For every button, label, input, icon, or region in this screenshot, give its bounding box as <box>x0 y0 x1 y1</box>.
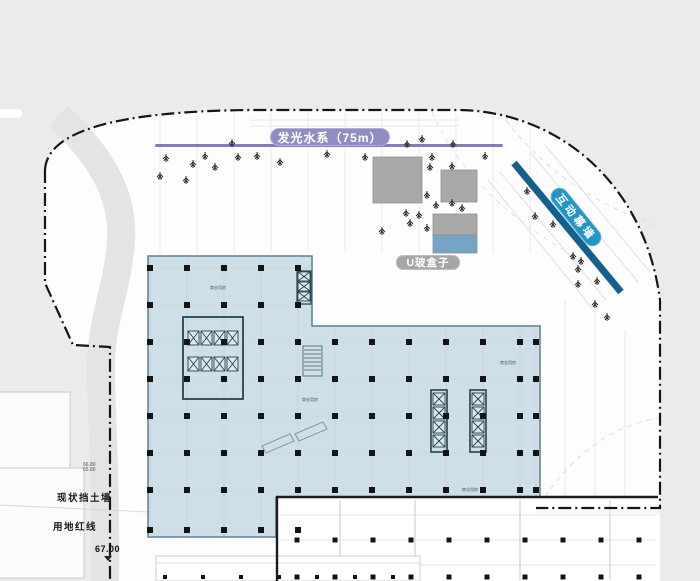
column <box>637 575 642 580</box>
column <box>369 413 375 419</box>
column <box>295 575 300 580</box>
column <box>163 575 167 579</box>
column <box>447 575 452 580</box>
column <box>184 339 190 345</box>
column <box>332 339 338 345</box>
column <box>443 450 449 456</box>
column <box>184 376 190 382</box>
column <box>599 575 604 580</box>
column <box>561 538 566 543</box>
column <box>523 575 528 580</box>
room-label: 商业用房 <box>210 285 226 291</box>
column <box>258 487 264 493</box>
column <box>369 376 375 382</box>
column <box>258 413 264 419</box>
column <box>371 538 376 543</box>
column <box>353 575 357 579</box>
column <box>295 413 301 419</box>
column <box>333 538 338 543</box>
column <box>295 527 301 533</box>
column <box>480 376 486 382</box>
room-label: 商业用房 <box>302 397 318 403</box>
column <box>533 376 539 382</box>
column <box>371 575 376 580</box>
column <box>409 538 414 543</box>
column <box>258 265 264 271</box>
column <box>485 575 490 580</box>
column <box>239 575 243 579</box>
column <box>221 265 227 271</box>
outside-br2 <box>536 510 662 514</box>
column <box>221 487 227 493</box>
column <box>295 339 301 345</box>
spot-level-label: 67.00 <box>95 544 120 554</box>
column <box>184 413 190 419</box>
column <box>409 575 414 580</box>
column <box>517 376 523 382</box>
road-stub <box>0 109 22 118</box>
column <box>184 487 190 493</box>
column <box>369 450 375 456</box>
column <box>332 413 338 419</box>
column <box>443 413 449 419</box>
column <box>332 487 338 493</box>
column <box>147 302 153 308</box>
column <box>277 575 281 579</box>
column <box>258 527 264 533</box>
column <box>533 339 539 345</box>
column <box>406 339 412 345</box>
column <box>258 339 264 345</box>
column <box>533 450 539 456</box>
column <box>295 376 301 382</box>
column <box>295 302 301 308</box>
column <box>443 487 449 493</box>
column <box>258 450 264 456</box>
column <box>147 450 153 456</box>
column <box>295 265 301 271</box>
column <box>517 487 523 493</box>
column <box>221 376 227 382</box>
column <box>147 265 153 271</box>
column <box>533 487 539 493</box>
column <box>147 487 153 493</box>
column <box>480 413 486 419</box>
column <box>221 413 227 419</box>
column <box>523 538 528 543</box>
column <box>480 339 486 345</box>
site-plan-canvas: 发光水系（75m） U玻盒子 互动幕墙 现状挡土墙 用地红线 67.00 66.… <box>0 0 700 581</box>
column <box>406 413 412 419</box>
column <box>258 302 264 308</box>
column <box>295 487 301 493</box>
column <box>147 376 153 382</box>
column <box>184 527 190 533</box>
column <box>561 575 566 580</box>
column <box>315 575 319 579</box>
small-levels: 66.80 65.80 <box>83 463 96 473</box>
column <box>443 376 449 382</box>
column <box>406 487 412 493</box>
column <box>391 575 395 579</box>
room-label: 商业用房 <box>462 487 478 493</box>
column <box>517 450 523 456</box>
column <box>480 487 486 493</box>
column <box>599 538 604 543</box>
column <box>406 376 412 382</box>
column <box>147 339 153 345</box>
column <box>333 575 338 580</box>
column <box>184 302 190 308</box>
column <box>184 265 190 271</box>
column <box>221 527 227 533</box>
column <box>533 413 539 419</box>
column <box>369 339 375 345</box>
column <box>258 376 264 382</box>
column <box>406 450 412 456</box>
red-line-label: 用地红线 <box>53 519 97 533</box>
column <box>147 413 153 419</box>
u-glass-box-label: U玻盒子 <box>396 255 460 270</box>
column <box>369 487 375 493</box>
column <box>480 450 486 456</box>
column <box>221 339 227 345</box>
water-feature-label: 发光水系（75m） <box>270 128 390 146</box>
column <box>332 376 338 382</box>
column <box>184 450 190 456</box>
column <box>147 527 153 533</box>
column <box>332 450 338 456</box>
spot-level-marker <box>104 556 112 561</box>
column <box>295 450 301 456</box>
column <box>221 450 227 456</box>
column <box>517 413 523 419</box>
column <box>447 538 452 543</box>
column <box>517 339 523 345</box>
column <box>443 339 449 345</box>
column <box>637 538 642 543</box>
column <box>485 538 490 543</box>
column <box>221 302 227 308</box>
retaining-wall-label: 现状挡土墙 <box>57 490 112 504</box>
column <box>295 538 300 543</box>
outside-br <box>662 300 700 581</box>
room-label: 商业用房 <box>500 360 516 366</box>
column <box>201 575 205 579</box>
